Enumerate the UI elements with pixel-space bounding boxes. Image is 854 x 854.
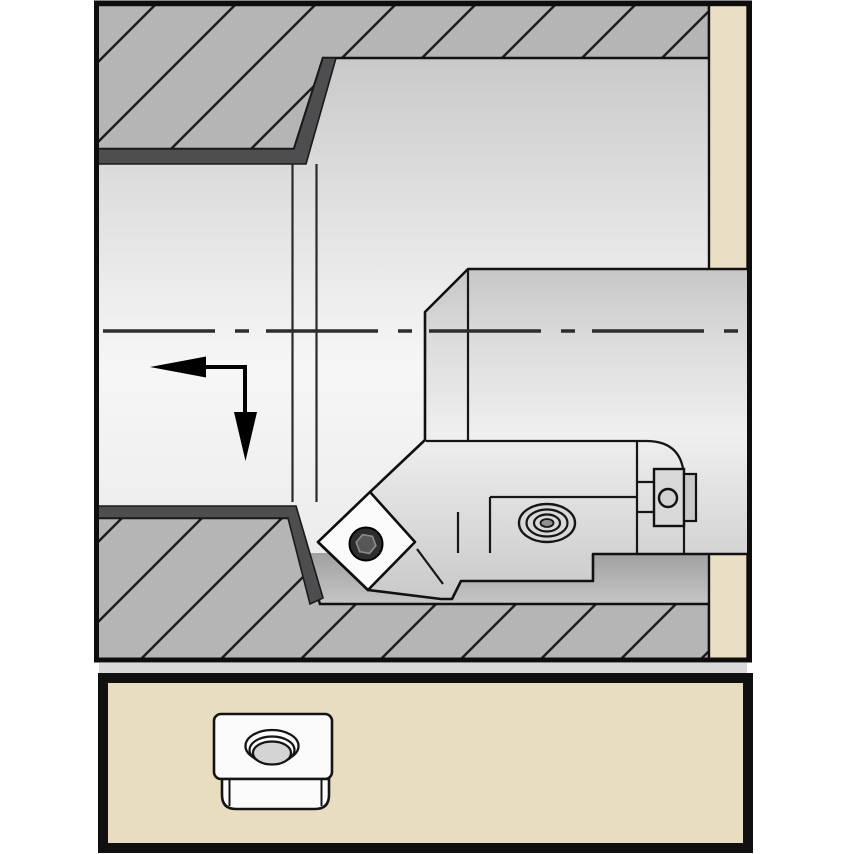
- side-screw-hole: [659, 489, 677, 507]
- insert-icon-front-face: [222, 779, 329, 809]
- boring-tool-technical-figure: Cross-section technical illustration of …: [0, 0, 854, 854]
- insert-panel-background: [108, 683, 743, 843]
- insert-icon-hole: [253, 742, 291, 765]
- clamp-screw: [519, 504, 575, 542]
- technical-drawing-svg: Cross-section technical illustration of …: [0, 0, 854, 854]
- frame-gap-strip: [99, 663, 747, 673]
- side-screw-cap: [684, 474, 696, 521]
- clamp-screw-socket: [541, 519, 554, 527]
- insert-panel: [98, 673, 753, 853]
- insert-icon: [214, 714, 332, 809]
